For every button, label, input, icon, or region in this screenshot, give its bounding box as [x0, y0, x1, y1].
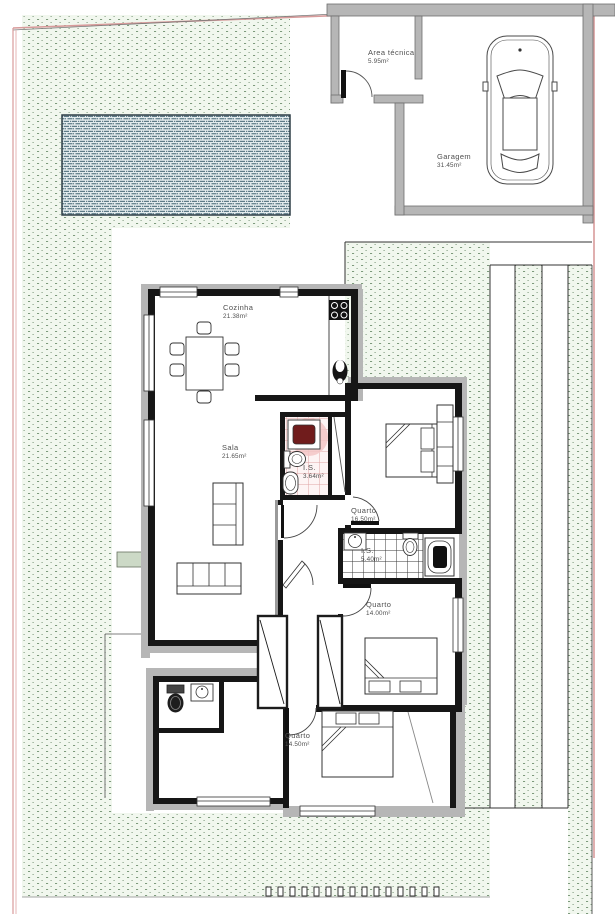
room-name: Quarto — [366, 600, 391, 609]
room-area: 5.95m² — [368, 57, 415, 66]
room-name: Cozinha — [223, 303, 253, 312]
bed-icon — [365, 638, 437, 694]
fence-posts — [266, 887, 439, 896]
window — [144, 420, 154, 506]
sofa-icon — [177, 563, 241, 594]
washbasin-icon — [191, 684, 213, 701]
wardrobe-icon — [318, 616, 342, 708]
garage-block — [327, 4, 615, 223]
toilet-icon — [403, 533, 418, 556]
door-swing — [346, 71, 372, 97]
door-swing — [281, 505, 317, 538]
room-label-sala: Sala 21.65m² — [222, 443, 247, 461]
window — [197, 797, 270, 806]
door-swing — [283, 561, 313, 588]
window — [453, 598, 463, 652]
room-name: Garagem — [437, 152, 471, 161]
wc-fixtures — [167, 684, 213, 713]
room-name: Quarto — [285, 731, 310, 740]
car-icon — [483, 36, 557, 184]
room-label-quarto-3: Quarto 14.50m² — [285, 731, 310, 749]
floor-plan-drawing — [0, 0, 615, 914]
room-area: 14.00m² — [366, 609, 391, 618]
wardrobes — [258, 616, 342, 708]
door-panel — [341, 70, 346, 98]
pool — [62, 115, 290, 215]
room-label-garagem: Garagem 31.45m² — [437, 152, 471, 170]
room-area: 21.38m² — [223, 312, 253, 321]
room-area: 16.50m² — [351, 515, 376, 524]
bathtub-icon — [425, 538, 454, 576]
room-area: 21.65m² — [222, 452, 247, 461]
washbasin-icon — [283, 472, 298, 494]
room-name: I.S. — [303, 463, 324, 472]
room-name: Sala — [222, 443, 247, 452]
lawn-stripe-1 — [515, 265, 542, 808]
lawn-bottom — [22, 813, 490, 897]
window — [144, 315, 154, 391]
sala-furniture — [177, 483, 243, 594]
room-label-quarto-2: Quarto 14.00m² — [366, 600, 391, 618]
room-name: Area técnica — [368, 48, 415, 57]
floor-plan: Area técnica 5.95m² Garagem 31.45m² Cozi… — [0, 0, 615, 914]
shower-icon — [288, 420, 320, 449]
bed-icon — [322, 711, 393, 777]
toilet-icon — [167, 685, 184, 713]
dining-table-icon — [170, 322, 239, 403]
room-area: 3.64m² — [303, 472, 324, 481]
wardrobe-icon — [258, 616, 287, 708]
room-area: 31.45m² — [437, 161, 471, 170]
room-label-cozinha: Cozinha 21.38m² — [223, 303, 253, 321]
room-label-area-tecnica: Area técnica 5.95m² — [368, 48, 415, 66]
garage-walls — [327, 4, 615, 223]
window — [280, 287, 298, 297]
lawn-stripe-2 — [568, 265, 592, 914]
kitchen-fixtures — [170, 300, 349, 403]
room-area: 14.50m² — [285, 740, 310, 749]
window — [160, 287, 197, 297]
sofa-icon — [213, 483, 243, 545]
planter — [117, 552, 143, 567]
room-name: Quarto — [351, 506, 376, 515]
room-area: 5.40m² — [361, 555, 382, 564]
window — [300, 806, 375, 816]
room-label-is-1: I.S. 3.64m² — [303, 463, 324, 481]
room-label-quarto-1: Quarto 16.50m² — [351, 506, 376, 524]
stove-icon — [329, 300, 349, 320]
window — [453, 417, 463, 471]
room-name: I.S. — [361, 546, 382, 555]
room-label-is-2: I.S. 5.40m² — [361, 546, 382, 564]
lawn-left-strip — [22, 228, 112, 897]
